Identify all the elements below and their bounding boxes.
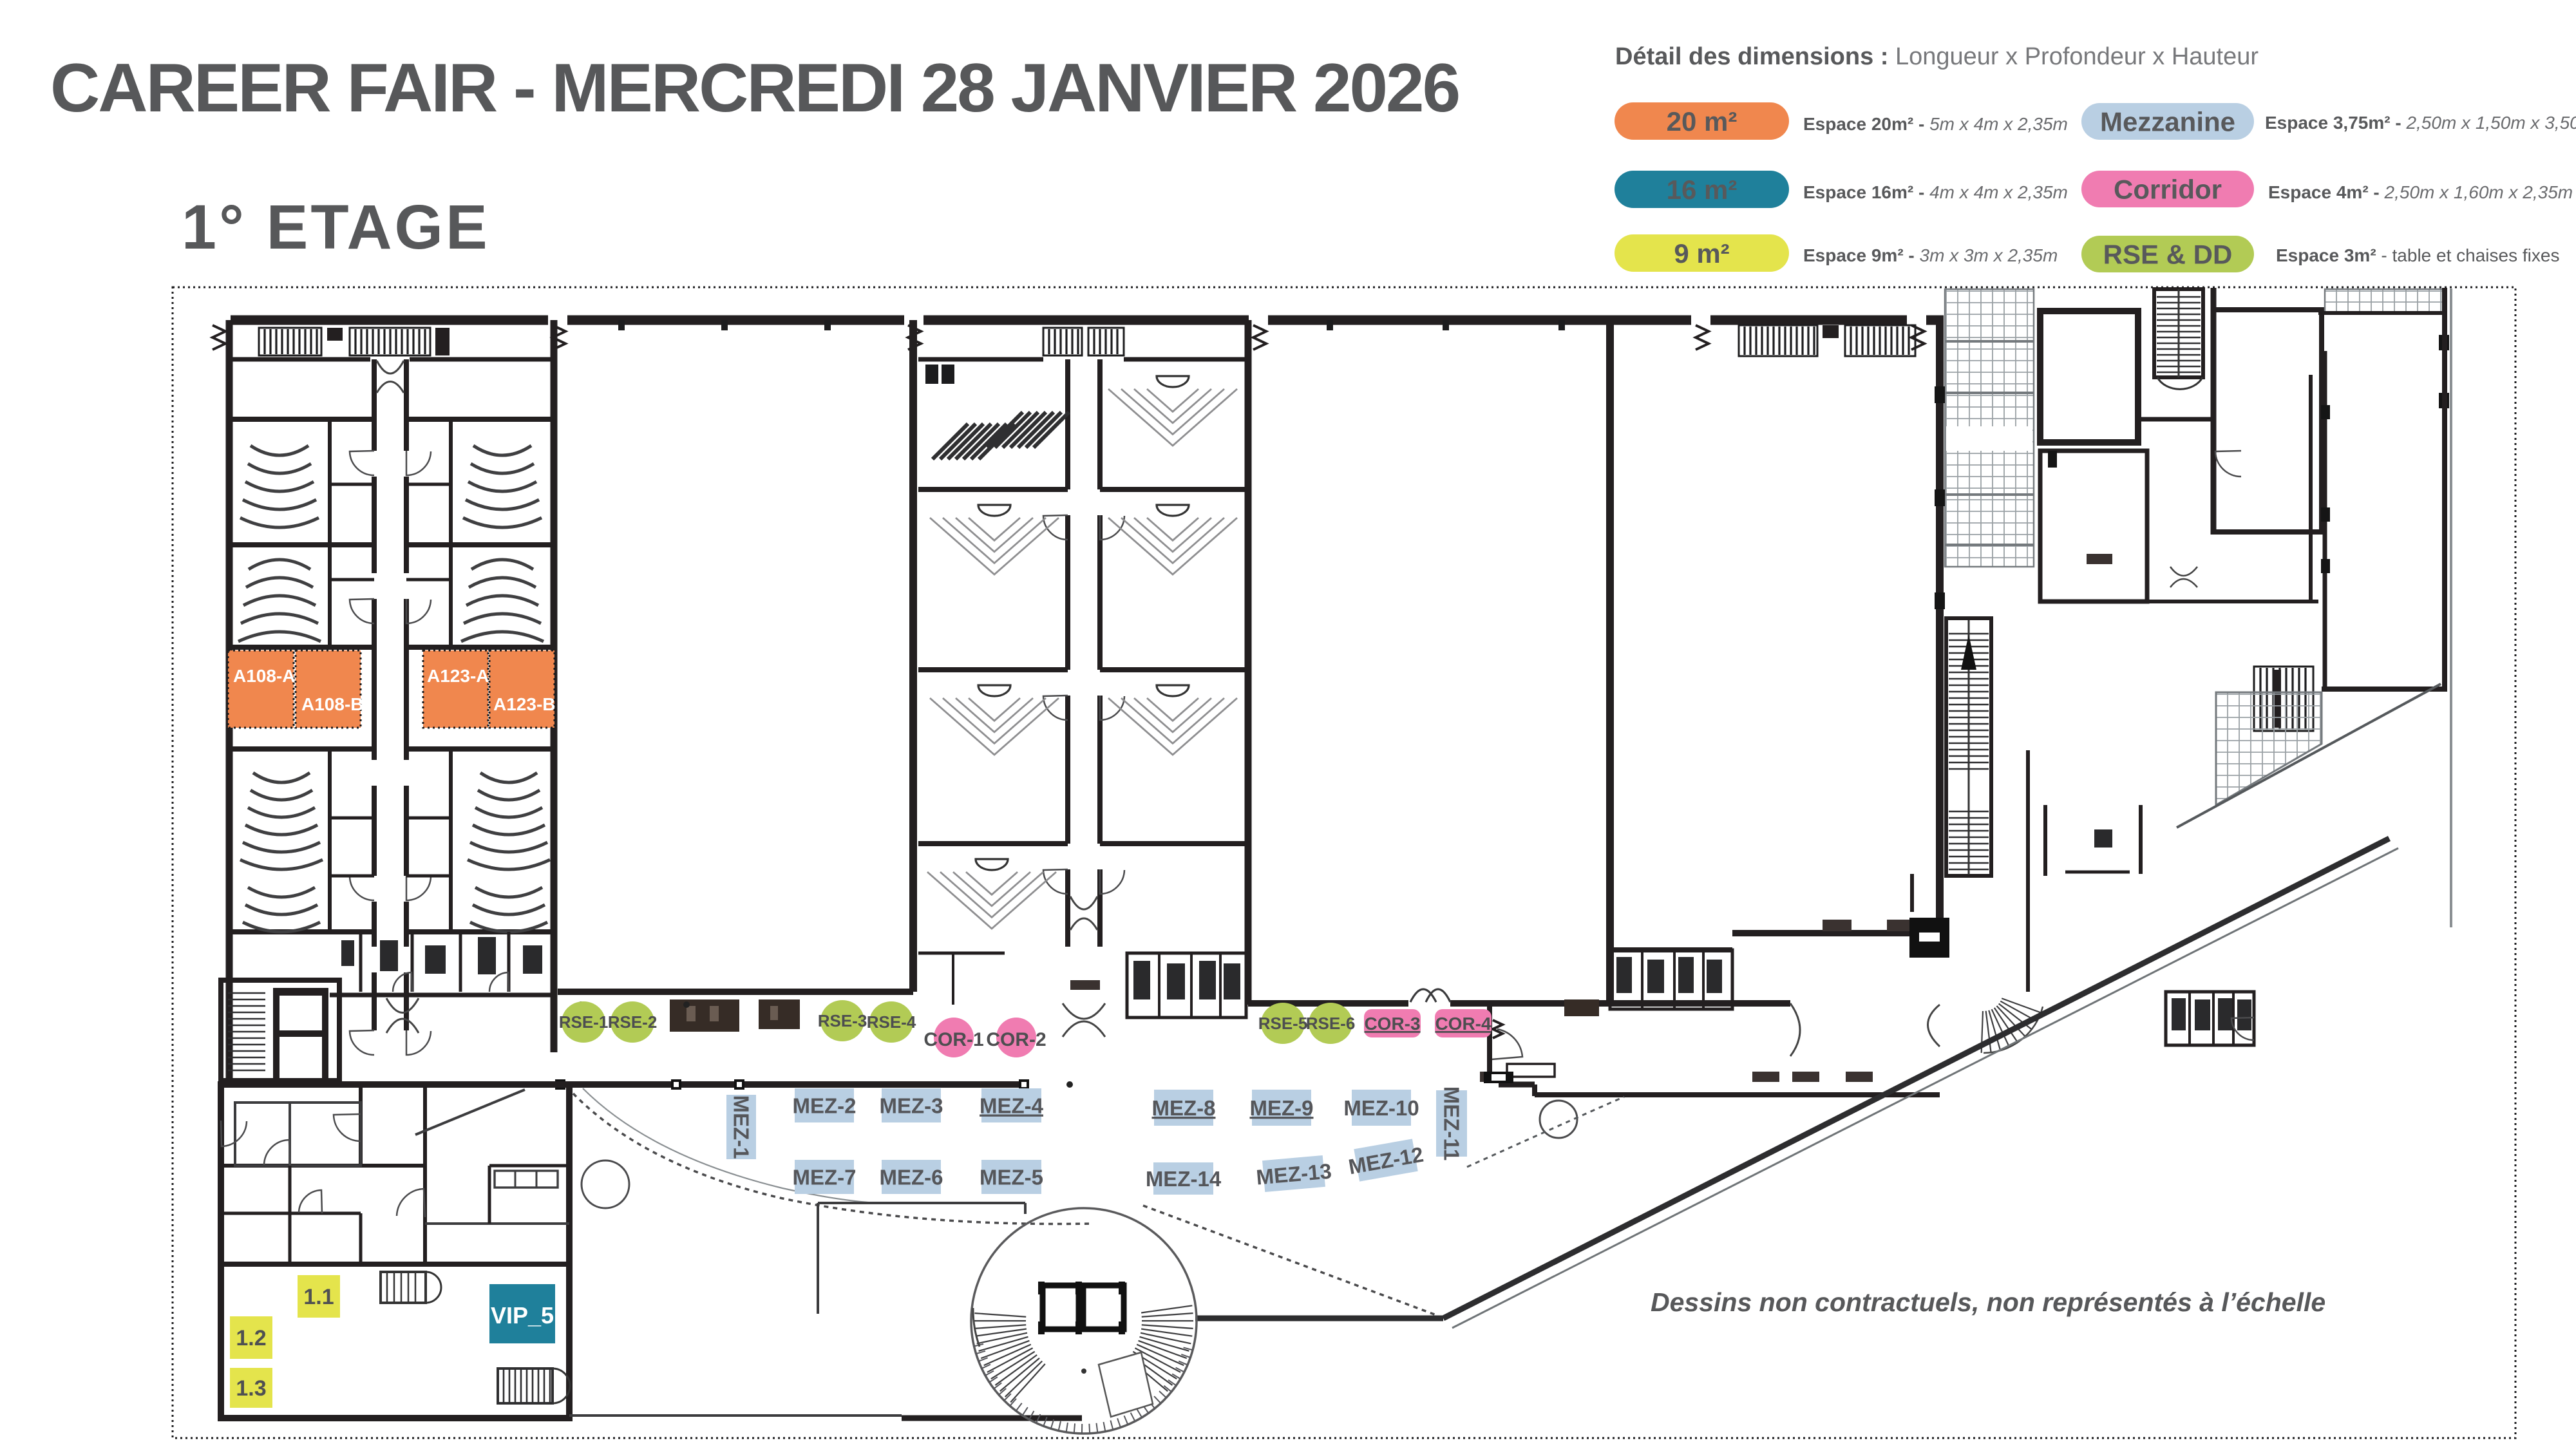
svg-text:9 m²: 9 m²	[1674, 238, 1729, 269]
svg-text:MEZ-9: MEZ-9	[1250, 1096, 1314, 1120]
svg-text:MEZ-3: MEZ-3	[880, 1094, 943, 1118]
svg-text:MEZ-8: MEZ-8	[1152, 1096, 1216, 1120]
svg-text:Espace 4m² - 2,50m x 1,60m x 2: Espace 4m² - 2,50m x 1,60m x 2,35m	[2268, 182, 2573, 202]
svg-text:Dessins non contractuels, non: Dessins non contractuels, non représenté…	[1651, 1287, 2325, 1317]
svg-text:RSE-6: RSE-6	[1306, 1014, 1356, 1033]
svg-text:RSE-5: RSE-5	[1258, 1014, 1308, 1033]
svg-text:MEZ-7: MEZ-7	[793, 1166, 857, 1189]
svg-text:COR-1: COR-1	[923, 1029, 983, 1050]
svg-text:MEZ-1: MEZ-1	[730, 1095, 753, 1159]
svg-text:A108-A: A108-A	[233, 666, 295, 686]
svg-text:Espace 3m² - table et chaises: Espace 3m² - table et chaises fixes	[2276, 245, 2559, 265]
svg-text:Corridor: Corridor	[2114, 175, 2222, 205]
svg-text:RSE-1: RSE-1	[559, 1012, 609, 1032]
svg-text:Détail des dimensions : Longue: Détail des dimensions : Longueur x Profo…	[1615, 43, 2259, 70]
svg-text:MEZ-14: MEZ-14	[1146, 1167, 1222, 1191]
svg-text:VIP_5: VIP_5	[491, 1302, 554, 1329]
svg-text:Espace 16m² - 4m x 4m x 2,35m: Espace 16m² - 4m x 4m x 2,35m	[1803, 182, 2068, 202]
svg-text:Espace 20m² - 5m x 4m x 2,35m: Espace 20m² - 5m x 4m x 2,35m	[1803, 114, 2068, 134]
svg-text:Mezzanine: Mezzanine	[2100, 107, 2235, 137]
svg-text:Espace 9m² - 3m x 3m x 2,35m: Espace 9m² - 3m x 3m x 2,35m	[1803, 245, 2058, 265]
svg-text:MEZ-5: MEZ-5	[980, 1166, 1043, 1189]
svg-text:RSE-4: RSE-4	[867, 1012, 916, 1032]
svg-text:A123-B: A123-B	[493, 694, 555, 714]
svg-text:1.2: 1.2	[236, 1326, 266, 1350]
svg-text:16 m²: 16 m²	[1667, 175, 1738, 205]
svg-text:1.1: 1.1	[303, 1285, 334, 1309]
svg-text:MEZ-11: MEZ-11	[1440, 1086, 1464, 1161]
svg-text:1° ETAGE: 1° ETAGE	[182, 192, 490, 262]
svg-text:A108-B: A108-B	[301, 694, 363, 714]
svg-text:RSE-2: RSE-2	[608, 1012, 658, 1032]
svg-text:MEZ-10: MEZ-10	[1343, 1096, 1419, 1120]
svg-text:Espace 3,75m² - 2,50m x 1,50m: Espace 3,75m² - 2,50m x 1,50m x 3,50m	[2265, 113, 2576, 133]
svg-text:1.3: 1.3	[236, 1376, 266, 1401]
svg-text:MEZ-6: MEZ-6	[880, 1166, 943, 1189]
svg-text:20 m²: 20 m²	[1667, 106, 1738, 137]
svg-text:RSE-3: RSE-3	[818, 1011, 867, 1030]
svg-text:A123-A: A123-A	[427, 666, 489, 686]
svg-text:CAREER FAIR - MERCREDI 28 JANV: CAREER FAIR - MERCREDI 28 JANVIER 2026	[50, 49, 1459, 126]
svg-text:RSE & DD: RSE & DD	[2103, 240, 2233, 270]
svg-text:COR-3: COR-3	[1364, 1014, 1420, 1034]
svg-text:MEZ-2: MEZ-2	[793, 1094, 857, 1118]
svg-text:COR-4: COR-4	[1435, 1014, 1492, 1034]
svg-text:COR-2: COR-2	[986, 1029, 1046, 1050]
svg-text:MEZ-4: MEZ-4	[980, 1094, 1044, 1118]
